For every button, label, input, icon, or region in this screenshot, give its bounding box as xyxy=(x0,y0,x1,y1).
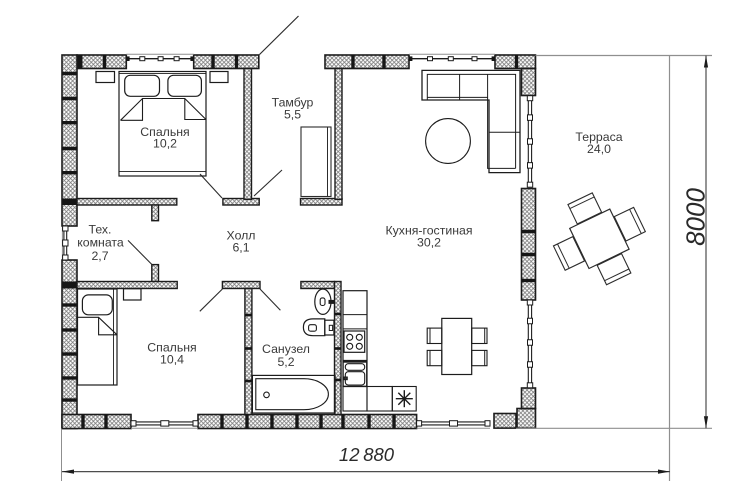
svg-text:5,5: 5,5 xyxy=(284,108,301,122)
svg-text:комната: комната xyxy=(77,236,124,250)
svg-text:24,0: 24,0 xyxy=(587,142,611,156)
svg-text:12 880: 12 880 xyxy=(339,444,395,465)
svg-text:30,2: 30,2 xyxy=(417,236,441,250)
svg-text:5,2: 5,2 xyxy=(277,355,294,369)
svg-text:10,4: 10,4 xyxy=(160,352,184,366)
svg-text:10,2: 10,2 xyxy=(153,137,177,151)
svg-text:Тех.: Тех. xyxy=(89,222,112,236)
svg-text:2,7: 2,7 xyxy=(91,249,108,263)
svg-text:8000: 8000 xyxy=(681,188,711,246)
svg-text:6,1: 6,1 xyxy=(232,241,249,255)
